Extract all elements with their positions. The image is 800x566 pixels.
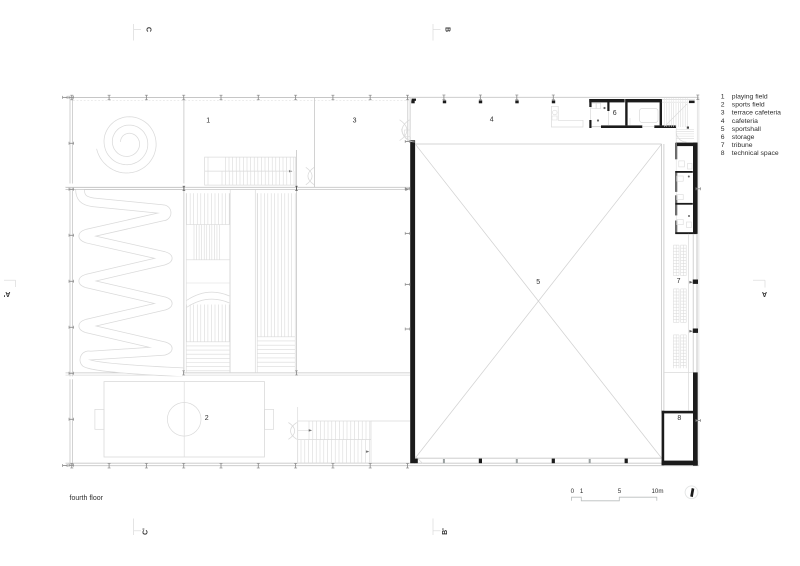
svg-text:tribune: tribune [732,142,753,149]
svg-text:sports field: sports field [732,102,765,109]
svg-text:fourth floor: fourth floor [70,495,104,502]
svg-text:A': A' [3,290,10,297]
svg-text:1: 1 [721,94,725,101]
svg-text:sportshall: sportshall [732,126,762,133]
svg-text:technical space: technical space [732,150,779,157]
svg-text:B': B' [442,528,449,535]
svg-text:B: B [444,27,451,32]
svg-text:cafeteria: cafeteria [732,118,758,125]
svg-text:C: C [145,27,152,32]
svg-text:5: 5 [618,488,622,495]
svg-text:4: 4 [721,118,725,125]
svg-text:5: 5 [721,126,725,133]
svg-text:10m: 10m [651,488,663,495]
svg-text:8: 8 [677,415,681,422]
svg-text:C': C' [143,528,150,535]
svg-text:4: 4 [490,117,494,124]
svg-text:terrace cafeteria: terrace cafeteria [732,110,781,117]
svg-text:7: 7 [677,278,681,285]
svg-text:6: 6 [721,134,725,141]
svg-text:1: 1 [580,488,584,495]
svg-text:5: 5 [536,279,540,286]
svg-text:storage: storage [732,134,755,141]
svg-text:2: 2 [721,102,725,109]
svg-text:7: 7 [721,142,725,149]
svg-text:3: 3 [353,117,357,124]
svg-text:0: 0 [571,488,575,495]
svg-text:2: 2 [205,415,209,422]
svg-text:6: 6 [613,110,617,117]
svg-text:1: 1 [206,118,210,125]
svg-text:A: A [762,290,767,297]
svg-text:8: 8 [721,150,725,157]
svg-text:3: 3 [721,110,725,117]
svg-text:playing field: playing field [732,94,768,101]
